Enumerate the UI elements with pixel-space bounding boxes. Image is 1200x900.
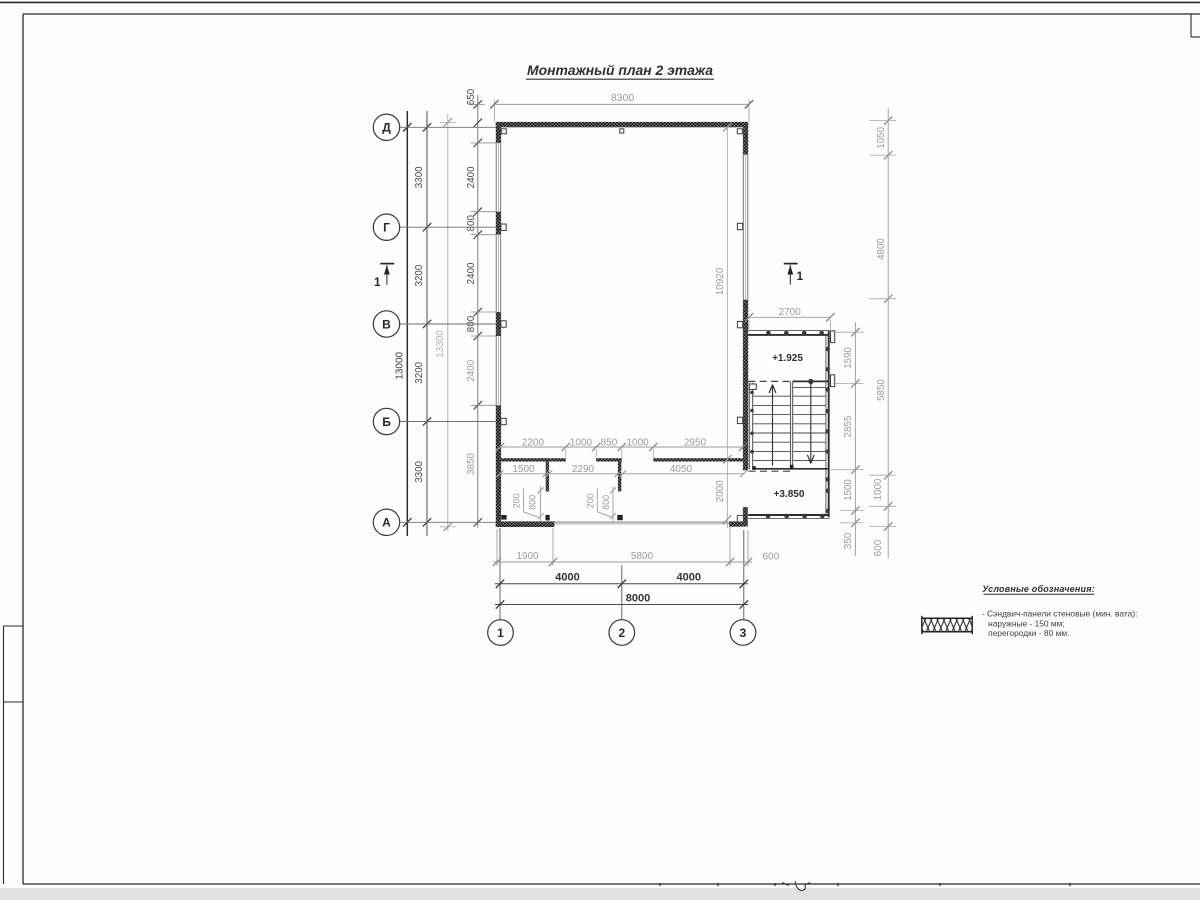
svg-text:наружные - 150 мм;: наружные - 150 мм;: [988, 618, 1065, 628]
svg-text:3300: 3300: [414, 166, 425, 188]
svg-text:1: 1: [374, 277, 381, 289]
svg-text:2290: 2290: [572, 464, 595, 475]
svg-text:3200: 3200: [414, 361, 425, 383]
svg-text:А: А: [382, 516, 391, 530]
svg-text:8000: 8000: [626, 593, 650, 605]
svg-text:перегородки - 80 мм.: перегородки - 80 мм.: [988, 628, 1069, 638]
svg-text:+3.850: +3.850: [774, 489, 805, 500]
svg-text:4000: 4000: [677, 572, 701, 584]
svg-text:1: 1: [497, 626, 504, 640]
svg-text:Г: Г: [383, 221, 390, 235]
svg-text:Б: Б: [382, 415, 391, 429]
svg-text:1050: 1050: [876, 126, 887, 148]
svg-text:350: 350: [843, 532, 854, 549]
svg-text:2700: 2700: [779, 307, 802, 318]
svg-text:800: 800: [601, 495, 611, 510]
svg-text:2400: 2400: [466, 359, 477, 381]
svg-text:Условные обозначения:: Условные обозначения:: [982, 584, 1095, 594]
svg-text:650: 650: [466, 88, 477, 105]
svg-text:200: 200: [586, 493, 596, 508]
svg-text:2000: 2000: [715, 480, 726, 503]
svg-text:10920: 10920: [715, 267, 726, 295]
svg-text:850: 850: [601, 438, 618, 449]
svg-text:1500: 1500: [512, 464, 535, 475]
svg-text:2200: 2200: [522, 438, 545, 449]
svg-text:8300: 8300: [611, 92, 635, 104]
svg-text:200: 200: [512, 493, 522, 508]
svg-text:+1.925: +1.925: [772, 353, 803, 364]
svg-text:3850: 3850: [466, 452, 477, 474]
svg-text:2400: 2400: [466, 166, 477, 188]
svg-text:2: 2: [618, 626, 625, 640]
svg-text:800: 800: [466, 214, 477, 231]
svg-text:- Сэндвич-панели стеновые (мин: - Сэндвич-панели стеновые (мин. вата):: [982, 609, 1138, 619]
svg-text:800: 800: [527, 495, 537, 510]
svg-text:1000: 1000: [570, 438, 593, 449]
svg-text:5800: 5800: [631, 551, 654, 562]
svg-text:4000: 4000: [555, 572, 579, 584]
svg-text:2950: 2950: [684, 438, 707, 449]
svg-text:1500: 1500: [843, 479, 854, 501]
svg-text:1000: 1000: [626, 438, 649, 449]
svg-text:13300: 13300: [435, 330, 446, 358]
svg-text:1900: 1900: [516, 551, 539, 562]
svg-text:2400: 2400: [466, 262, 477, 284]
svg-text:3300: 3300: [414, 460, 425, 482]
svg-text:1000: 1000: [873, 478, 884, 500]
svg-text:Д: Д: [382, 121, 391, 135]
svg-text:1: 1: [797, 271, 804, 283]
svg-text:1590: 1590: [843, 346, 854, 368]
svg-text:13000: 13000: [394, 351, 405, 379]
svg-text:В: В: [382, 317, 391, 331]
svg-text:3200: 3200: [414, 264, 425, 286]
svg-text:600: 600: [762, 552, 779, 563]
svg-text:2855: 2855: [843, 415, 854, 437]
svg-text:Монтажный план 2 этажа: Монтажный план 2 этажа: [527, 62, 713, 78]
svg-text:600: 600: [873, 539, 884, 556]
svg-text:4050: 4050: [670, 464, 693, 475]
svg-text:4800: 4800: [876, 238, 887, 260]
svg-text:3: 3: [740, 626, 747, 640]
svg-text:5850: 5850: [876, 379, 887, 401]
